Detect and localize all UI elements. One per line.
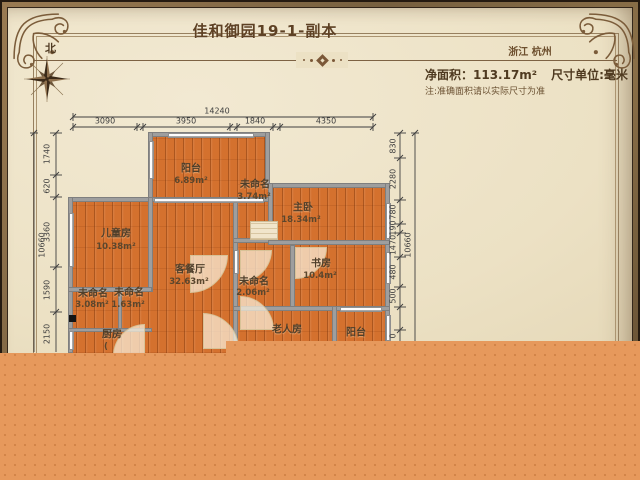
net-area-info: 净面积：113.17m² 尺寸单位:毫米 bbox=[425, 66, 628, 83]
room-name-elder-room: 老人房 bbox=[272, 321, 302, 336]
room-area-study: 10.4m² bbox=[303, 271, 337, 281]
dim-left-seg: 1740 bbox=[43, 144, 52, 164]
room-area-balcony-top: 6.89m² bbox=[174, 176, 208, 186]
page-title: 佳和御园19-1-副本 bbox=[0, 20, 530, 41]
window bbox=[340, 307, 382, 312]
window bbox=[234, 250, 239, 274]
room-area-master-bedroom: 18.34m² bbox=[281, 215, 320, 225]
dim-right-seg: 480 bbox=[389, 264, 398, 279]
dim-right-seg: 780 bbox=[389, 204, 398, 219]
wall bbox=[68, 197, 153, 202]
dim-left-seg: 620 bbox=[43, 178, 52, 193]
dim-top-seg: 3950 bbox=[176, 117, 196, 126]
window bbox=[69, 331, 74, 350]
dim-top-seg: 1840 bbox=[245, 117, 265, 126]
window bbox=[149, 141, 154, 179]
room-name-study: 书房 bbox=[311, 255, 331, 270]
dim-top-seg: 3090 bbox=[95, 117, 115, 126]
dim-right-partial: 0 bbox=[389, 333, 398, 338]
room-area-unnamed-2: 2.06m² bbox=[236, 288, 270, 298]
dim-top-seg: 4350 bbox=[316, 117, 336, 126]
pillar-marker bbox=[69, 315, 76, 322]
room-area-kitchen: ( bbox=[104, 342, 108, 352]
dim-right-seg: 830 bbox=[389, 138, 398, 153]
room-name-unnamed-2: 未命名 bbox=[239, 273, 269, 288]
dim-right-total: 10660 bbox=[404, 232, 413, 257]
dim-left-seg: 2150 bbox=[43, 324, 52, 344]
wall bbox=[265, 183, 390, 188]
north-label: 北 bbox=[45, 40, 56, 56]
room-area-living-dining: 32.63m² bbox=[169, 277, 208, 287]
room-name-kitchen: 厨房 bbox=[102, 326, 122, 341]
dim-right-seg: 500 bbox=[389, 288, 398, 303]
window bbox=[69, 213, 74, 267]
dim-left-seg: 3360 bbox=[43, 222, 52, 242]
compass-icon bbox=[24, 56, 70, 102]
room-name-unnamed-1: 未命名 bbox=[240, 176, 270, 191]
dim-top-total: 14240 bbox=[204, 107, 229, 116]
dim-right-seg: 2280 bbox=[389, 169, 398, 189]
dim-right-seg: 190 bbox=[389, 220, 398, 235]
dim-right-seg: 1470 bbox=[389, 235, 398, 255]
room-area-unnamed-1: 3.74m² bbox=[237, 192, 271, 202]
floor-plan-page: 佳和御园19-1-副本 浙江 杭州 净面积：113.17m² 尺寸单位:毫米 注… bbox=[0, 0, 640, 480]
room-name-balcony-bottom: 阳台 bbox=[346, 324, 366, 339]
window bbox=[168, 133, 254, 138]
location-label: 浙江 杭州 bbox=[430, 43, 630, 58]
unit-label: 尺寸单位:毫米 bbox=[551, 66, 628, 83]
dim-left-seg: 1590 bbox=[43, 280, 52, 300]
divider-ornament-icon bbox=[296, 52, 348, 68]
room-name-unnamed-3: 未命名 bbox=[78, 285, 108, 300]
wall bbox=[148, 197, 153, 292]
room-area-kids-room: 10.38m² bbox=[96, 242, 135, 252]
room-name-unnamed-4: 未命名 bbox=[114, 284, 144, 299]
room-name-living-dining: 客餐厅 bbox=[175, 261, 205, 276]
room-area-unnamed-3: 3.08m² bbox=[75, 300, 109, 310]
net-area-value: 净面积：113.17m² bbox=[425, 66, 537, 83]
accuracy-note: 注:准确面积请以实际尺寸为准 bbox=[425, 84, 545, 97]
wall bbox=[268, 240, 390, 245]
room-area-unnamed-4: 1.63m² bbox=[111, 300, 145, 310]
room-name-master-bedroom: 主卧 bbox=[293, 199, 313, 214]
cabinet-icon bbox=[250, 221, 278, 240]
room-name-balcony-top: 阳台 bbox=[181, 160, 201, 175]
room-name-kids-room: 儿童房 bbox=[101, 225, 131, 240]
